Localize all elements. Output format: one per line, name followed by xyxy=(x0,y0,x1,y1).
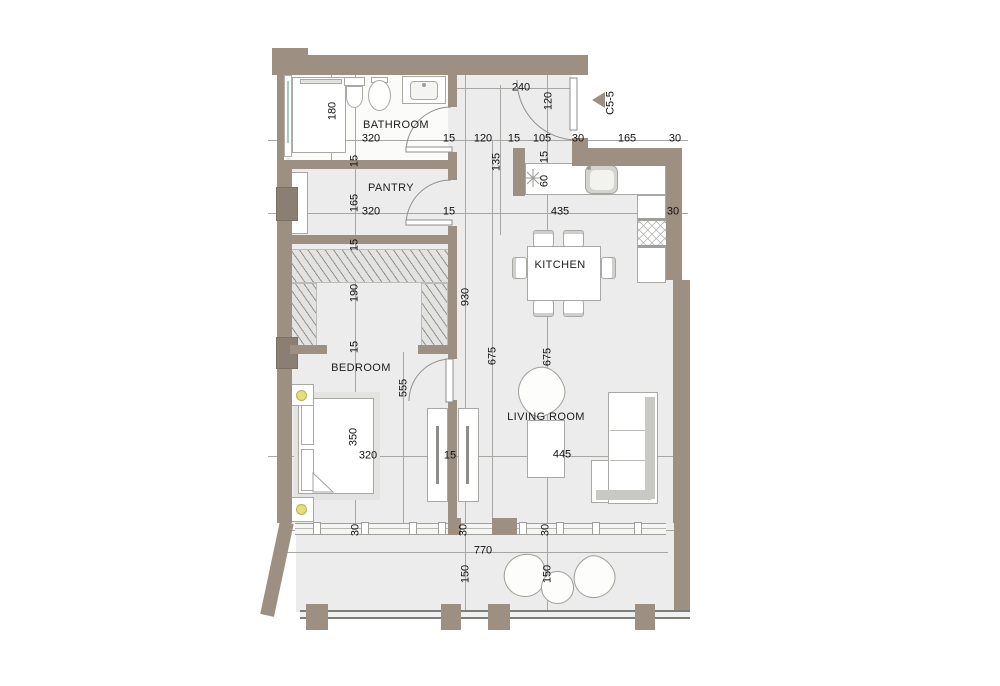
chair xyxy=(512,257,527,279)
dim-label: 445 xyxy=(553,450,571,461)
wall-right-lower xyxy=(673,280,690,523)
dim-label: 240 xyxy=(512,83,530,94)
wall-top xyxy=(272,55,588,75)
dim-label: 30 xyxy=(541,524,552,536)
sofa-seam xyxy=(610,460,645,461)
dim-label: 15 xyxy=(443,207,455,218)
dim-label: 180 xyxy=(328,102,339,120)
chair xyxy=(563,300,584,317)
dim-label: 15 xyxy=(350,341,361,353)
room-label-living: LIVING ROOM xyxy=(507,411,585,423)
room-label-kitchen: KITCHEN xyxy=(534,259,585,271)
sofa-backrest xyxy=(645,397,655,499)
sofa-backrest-bottom xyxy=(596,490,651,500)
window-frame xyxy=(409,522,417,535)
dim-label: 105 xyxy=(533,134,551,145)
dim-label: 120 xyxy=(544,92,555,110)
wall-kitchen-stub xyxy=(513,148,525,196)
wall-right-balcony xyxy=(674,523,690,612)
dim-label: 555 xyxy=(399,379,410,397)
dim-label: 350 xyxy=(349,428,360,446)
railing-post xyxy=(441,604,461,630)
room-label-bathroom: BATHROOM xyxy=(363,119,429,131)
window-frame xyxy=(556,522,564,535)
pillow xyxy=(301,403,314,445)
dim-label: 190 xyxy=(350,284,361,302)
shower-door xyxy=(300,79,342,84)
dim-label: 435 xyxy=(551,207,569,218)
cooktop xyxy=(638,218,666,248)
sofa-seam xyxy=(610,430,645,431)
wall-bedroom-living-stub xyxy=(448,350,457,359)
window-frame xyxy=(592,522,600,535)
wall-corridor-b xyxy=(448,152,457,180)
dim-label: 60 xyxy=(540,175,551,187)
toilet-tank xyxy=(344,77,365,86)
dim-label: 165 xyxy=(618,134,636,145)
floor-balcony xyxy=(296,523,676,612)
entry-door-opening xyxy=(572,75,588,138)
section-marker-label: C5-5 xyxy=(606,91,617,115)
window-frame xyxy=(361,522,369,535)
tv-icon xyxy=(466,426,469,484)
lamp-icon xyxy=(296,504,307,515)
window-frame xyxy=(438,522,446,535)
toilet-bowl xyxy=(346,86,363,108)
chair xyxy=(601,257,616,279)
dining-table xyxy=(527,246,601,301)
chair xyxy=(533,230,554,247)
dim-label: 675 xyxy=(543,348,554,366)
tv-icon xyxy=(436,426,439,484)
section-marker-triangle-icon xyxy=(592,92,605,108)
faucet-dot-icon xyxy=(587,166,591,170)
wall-closet-bedroom-left xyxy=(290,345,327,354)
wardrobe-right xyxy=(421,283,448,347)
dim-label: 15 xyxy=(350,239,361,251)
dim-label: 320 xyxy=(362,134,380,145)
dim-label: 15 xyxy=(540,151,551,163)
dim-label: 15 xyxy=(350,155,361,167)
railing-post xyxy=(488,604,510,630)
floor-plan: BATHROOM PANTRY KITCHEN BEDROOM LIVING R… xyxy=(0,0,1000,686)
faucet-dot-icon xyxy=(422,83,426,87)
bathroom-window-glass xyxy=(287,81,289,143)
wall-pantry-closet xyxy=(290,235,457,244)
dim-label: 770 xyxy=(474,546,492,557)
wall-bedroom-living xyxy=(448,400,457,523)
dim-label: 30 xyxy=(459,524,470,536)
pillow xyxy=(301,449,314,491)
room-label-pantry: PANTRY xyxy=(368,182,414,194)
wc-oval xyxy=(368,80,391,111)
dim-label: 150 xyxy=(543,565,554,583)
wall-column xyxy=(277,188,297,220)
window-frame xyxy=(634,522,642,535)
wall-bath-pantry xyxy=(290,160,457,169)
wall-left-balcony xyxy=(260,521,293,617)
wall-left-upper xyxy=(277,55,284,160)
dim-label: 15 xyxy=(444,451,456,462)
window-frame xyxy=(519,522,527,535)
dim-line xyxy=(492,140,493,535)
dim-line xyxy=(268,213,688,214)
lamp-icon xyxy=(296,390,307,401)
window-frame xyxy=(313,522,321,535)
room-label-bedroom: BEDROOM xyxy=(331,362,391,374)
dim-label: 120 xyxy=(474,134,492,145)
dim-label: 675 xyxy=(488,347,499,365)
kitchen-sink-basin xyxy=(590,170,614,190)
wall-closet-right xyxy=(448,244,457,350)
wall-corridor-a xyxy=(448,75,457,107)
chair xyxy=(563,230,584,247)
dim-label: 15 xyxy=(443,134,455,145)
dim-label: 30 xyxy=(351,524,362,536)
dim-label: 30 xyxy=(669,134,681,145)
dim-label: 150 xyxy=(461,565,472,583)
dim-label: 320 xyxy=(359,451,377,462)
dim-label: 135 xyxy=(492,153,503,171)
dim-label: 930 xyxy=(461,288,472,306)
railing-post xyxy=(635,604,655,630)
chair xyxy=(533,300,554,317)
dim-label: 165 xyxy=(350,194,361,212)
dim-label: 30 xyxy=(667,207,679,218)
railing-post xyxy=(306,604,328,630)
window-pier xyxy=(492,518,517,535)
dim-label: 30 xyxy=(572,134,584,145)
wardrobe-top xyxy=(291,249,449,283)
dim-label: 15 xyxy=(508,134,520,145)
wall-corridor-c xyxy=(448,226,457,244)
dim-label: 320 xyxy=(362,207,380,218)
